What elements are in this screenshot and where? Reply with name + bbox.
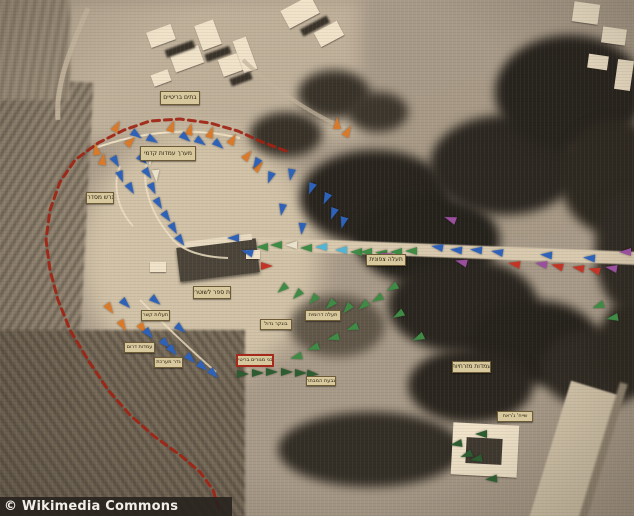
watermark-text: © Wikimedia Commons bbox=[4, 499, 178, 514]
map-label: עמדות דרום bbox=[124, 342, 155, 353]
map-label: גדר מערכת bbox=[154, 357, 183, 368]
map-label: תעלה דרומית bbox=[305, 310, 341, 321]
map-label: עמדות מזרחיות bbox=[452, 361, 491, 373]
map-label: גבעת המבתר bbox=[306, 376, 336, 386]
watermark-bar: © Wikimedia Commons bbox=[0, 497, 232, 516]
map-label: תעלה צפונית bbox=[366, 254, 406, 266]
map-label: תעלות קשר bbox=[141, 310, 170, 321]
annotated-aerial-map: בתים בריטייםמערך עמדות קדמימגרש מסדריםבי… bbox=[0, 0, 634, 516]
map-label: מגרש מסדרים bbox=[86, 192, 114, 204]
map-label: בתים בריטיים bbox=[160, 91, 200, 105]
map-label: מערך עמדות קדמי bbox=[140, 146, 196, 161]
map-label: שייח' ג'ראח bbox=[497, 411, 533, 422]
map-label: בית ספר לשוטרים bbox=[193, 286, 231, 299]
labels-layer: בתים בריטייםמערך עמדות קדמימגרש מסדריםבי… bbox=[0, 0, 634, 516]
map-label: בונקר גדול bbox=[260, 319, 292, 330]
map-label: מבני מגורים בריטיים bbox=[237, 355, 273, 366]
